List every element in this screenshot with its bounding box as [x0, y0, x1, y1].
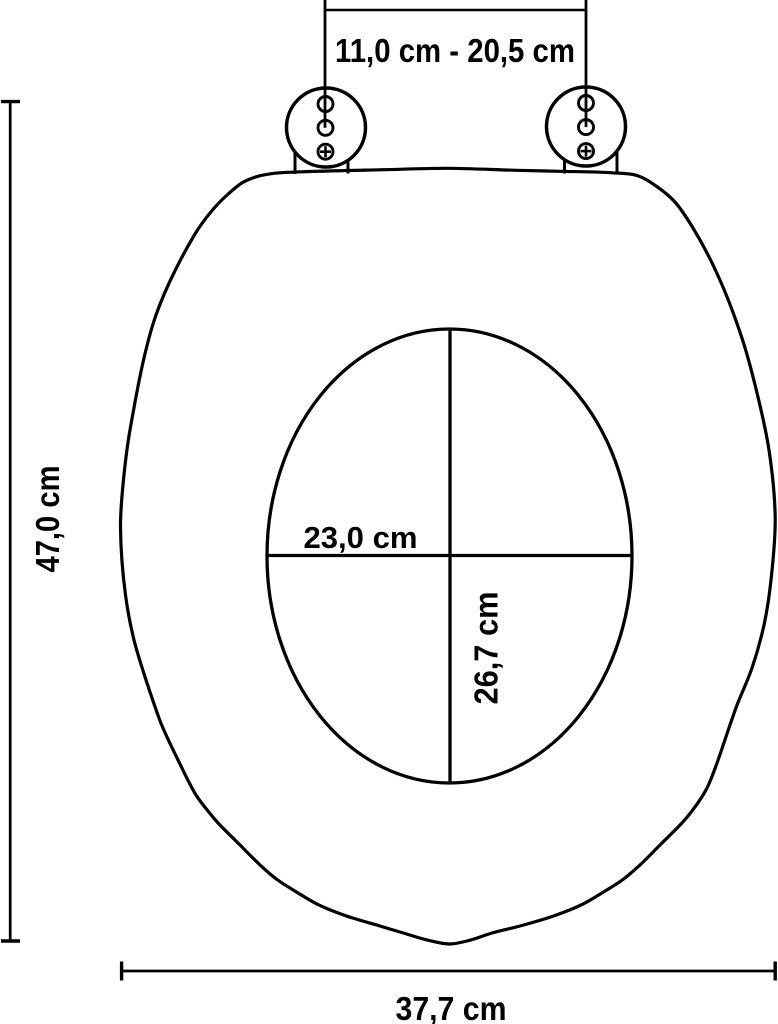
svg-text:47,0 cm: 47,0 cm	[29, 466, 66, 573]
svg-text:11,0 cm - 20,5 cm: 11,0 cm - 20,5 cm	[335, 32, 575, 69]
svg-text:23,0 cm: 23,0 cm	[304, 520, 418, 555]
svg-text:37,7 cm: 37,7 cm	[396, 990, 507, 1024]
svg-text:26,7 cm: 26,7 cm	[468, 592, 505, 705]
